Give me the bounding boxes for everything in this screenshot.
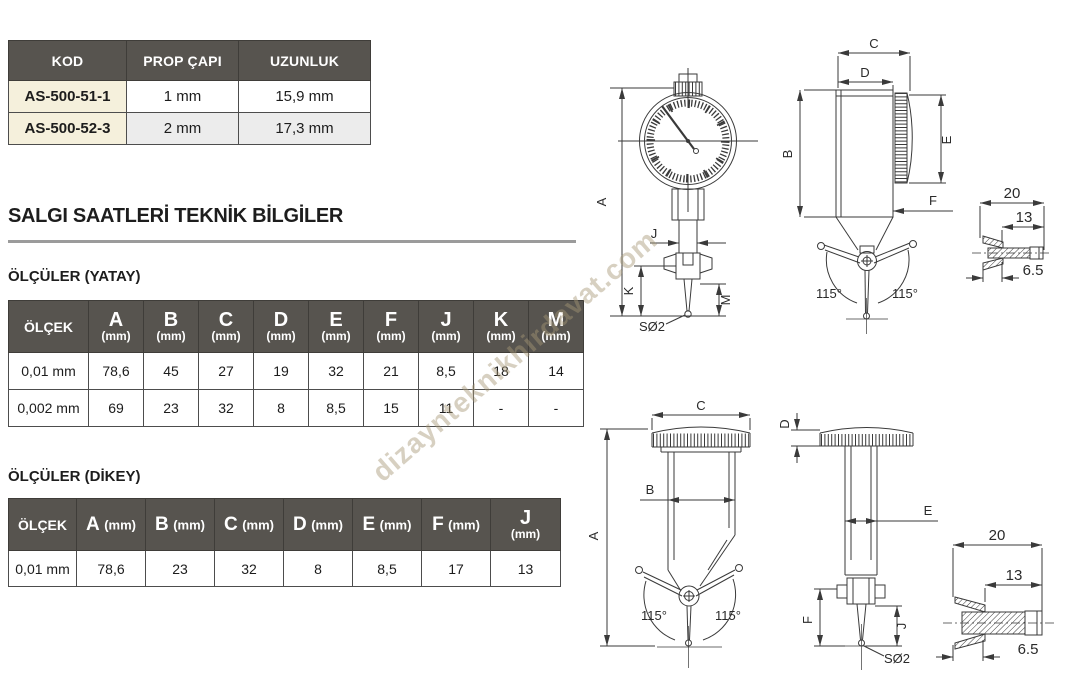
dim-label-B: B <box>780 150 795 159</box>
dim-label-20: 20 <box>989 527 1006 544</box>
col-header-B: B (mm) <box>146 499 215 551</box>
dim-label-D: D <box>777 419 792 428</box>
dim-label-tip: SØ2 <box>639 319 665 334</box>
col-header-C: C(mm) <box>199 301 254 353</box>
page-title: SALGI SAATLERİ TEKNİK BİLGİLER <box>8 205 343 228</box>
col-header-K: K(mm) <box>474 301 529 353</box>
dim-value: 27 <box>199 353 254 390</box>
dim-label-20: 20 <box>1004 185 1021 202</box>
angle-label: 115° <box>816 286 842 301</box>
drawing-horizontal-front-view: A J K M SØ2 <box>594 68 758 334</box>
dim-label-E: E <box>924 503 933 518</box>
col-header-D: D(mm) <box>254 301 309 353</box>
table-header-row: KOD PROP ÇAPI UZUNLUK <box>9 41 371 81</box>
dim-value: 32 <box>309 353 364 390</box>
dim-value: 8,5 <box>353 551 422 587</box>
col-header-uzunluk: UZUNLUK <box>239 41 371 81</box>
col-header-D: D (mm) <box>284 499 353 551</box>
dim-label-6-5: 6.5 <box>1023 262 1044 279</box>
dim-value: 18 <box>474 353 529 390</box>
drawing-horizontal-side-view: C D E B F <box>780 36 954 334</box>
dim-label-E: E <box>939 135 954 144</box>
dim-label-D: D <box>860 65 869 80</box>
drawing-vertical-side-view: D E F J SØ2 <box>777 413 938 670</box>
dimensions-table-horizontal: ÖLÇEK A(mm) B(mm) C(mm) D(mm) E(mm) F(mm… <box>8 300 584 427</box>
dim-value: - <box>529 390 584 427</box>
dim-value: 13 <box>491 551 561 587</box>
table-row: 0,01 mm 78,6 45 27 19 32 21 8,5 18 14 <box>9 353 584 390</box>
dim-value: 32 <box>215 551 284 587</box>
dim-value: 14 <box>529 353 584 390</box>
col-header-A: A (mm) <box>77 499 146 551</box>
dim-value: 8,5 <box>309 390 364 427</box>
dim-value: 23 <box>146 551 215 587</box>
col-header-E: E (mm) <box>353 499 422 551</box>
catalog-page: { "top_table": { "headers": ["KOD", "PRO… <box>0 0 1075 691</box>
dim-value: 8,5 <box>419 353 474 390</box>
table-row: AS-500-52-3 2 mm 17,3 mm <box>9 113 371 145</box>
col-header-B: B(mm) <box>144 301 199 353</box>
col-header-M: M(mm) <box>529 301 584 353</box>
dim-value: 11 <box>419 390 474 427</box>
prop-capi-value: 2 mm <box>127 113 239 145</box>
drawing-dovetail-section-top: 20 13 6.5 <box>966 185 1052 282</box>
dim-value: 69 <box>89 390 144 427</box>
dim-value: 8 <box>284 551 353 587</box>
scale-value: 0,01 mm <box>9 353 89 390</box>
col-header-olcek: ÖLÇEK <box>9 499 77 551</box>
col-header-F: F(mm) <box>364 301 419 353</box>
dim-label-13: 13 <box>1006 567 1023 584</box>
dim-label-J: J <box>894 623 909 630</box>
col-header-olcek: ÖLÇEK <box>9 301 89 353</box>
dim-value: 21 <box>364 353 419 390</box>
uzunluk-value: 17,3 mm <box>239 113 371 145</box>
dim-label-A: A <box>594 197 609 206</box>
divider <box>8 240 576 243</box>
table-header-row: ÖLÇEK A (mm) B (mm) C (mm) D (mm) E (mm)… <box>9 499 561 551</box>
col-header-J: J(mm) <box>419 301 474 353</box>
col-header-J: J(mm) <box>491 499 561 551</box>
drawing-dovetail-section-bottom: 20 13 6.5 <box>936 527 1055 661</box>
dim-label-13: 13 <box>1016 209 1033 226</box>
dim-value: 19 <box>254 353 309 390</box>
col-header-A: A(mm) <box>89 301 144 353</box>
dim-label-C: C <box>869 36 878 51</box>
col-header-prop-capi: PROP ÇAPI <box>127 41 239 81</box>
prop-capi-value: 1 mm <box>127 81 239 113</box>
dikey-section-label: ÖLÇÜLER (DİKEY) <box>8 468 141 485</box>
col-header-E: E(mm) <box>309 301 364 353</box>
dim-label-tip: SØ2 <box>884 651 910 666</box>
col-header-C: C (mm) <box>215 499 284 551</box>
col-header-kod: KOD <box>9 41 127 81</box>
dim-label-M: M <box>718 295 733 306</box>
table-row: 0,01 mm 78,6 23 32 8 8,5 17 13 <box>9 551 561 587</box>
dim-value: 32 <box>199 390 254 427</box>
product-code: AS-500-52-3 <box>9 113 127 145</box>
scale-value: 0,002 mm <box>9 390 89 427</box>
dim-label-F: F <box>800 616 815 624</box>
dim-label-A: A <box>586 531 601 540</box>
dim-label-F: F <box>929 193 937 208</box>
angle-label: 115° <box>641 608 667 623</box>
col-header-F: F (mm) <box>422 499 491 551</box>
product-code: AS-500-51-1 <box>9 81 127 113</box>
dim-value: 45 <box>144 353 199 390</box>
dim-label-6-5: 6.5 <box>1018 641 1039 658</box>
dim-value: 23 <box>144 390 199 427</box>
uzunluk-value: 15,9 mm <box>239 81 371 113</box>
product-code-table: KOD PROP ÇAPI UZUNLUK AS-500-51-1 1 mm 1… <box>8 40 371 145</box>
dimensions-table-vertical: ÖLÇEK A (mm) B (mm) C (mm) D (mm) E (mm)… <box>8 498 561 587</box>
dim-label-J: J <box>651 226 658 241</box>
table-row: AS-500-51-1 1 mm 15,9 mm <box>9 81 371 113</box>
scale-value: 0,01 mm <box>9 551 77 587</box>
dim-value: - <box>474 390 529 427</box>
table-header-row: ÖLÇEK A(mm) B(mm) C(mm) D(mm) E(mm) F(mm… <box>9 301 584 353</box>
dim-label-C: C <box>696 398 705 413</box>
yatay-section-label: ÖLÇÜLER (YATAY) <box>8 268 141 285</box>
dim-value: 78,6 <box>89 353 144 390</box>
angle-label: 115° <box>715 608 741 623</box>
dim-value: 15 <box>364 390 419 427</box>
dim-label-B: B <box>646 482 655 497</box>
dim-value: 78,6 <box>77 551 146 587</box>
dim-label-K: K <box>621 286 636 295</box>
angle-label: 115° <box>892 286 918 301</box>
dim-value: 8 <box>254 390 309 427</box>
drawing-vertical-front-view: C A B <box>586 398 750 668</box>
dim-value: 17 <box>422 551 491 587</box>
table-row: 0,002 mm 69 23 32 8 8,5 15 11 - - <box>9 390 584 427</box>
